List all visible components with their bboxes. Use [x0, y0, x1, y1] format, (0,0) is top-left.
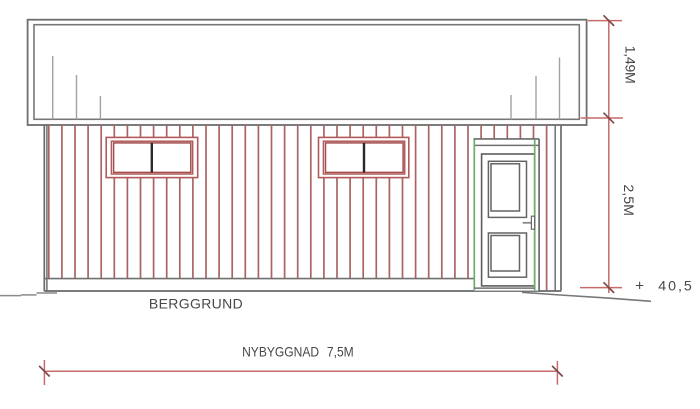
svg-text:40,5: 40,5	[658, 278, 694, 294]
svg-text:BERGGRUND: BERGGRUND	[149, 295, 243, 311]
svg-text:2,5M: 2,5M	[620, 184, 636, 216]
svg-text:NYBYGGNAD: NYBYGGNAD	[242, 344, 319, 360]
svg-text:+: +	[635, 277, 644, 294]
svg-text:7,5M: 7,5M	[327, 344, 354, 360]
svg-text:1,49M: 1,49M	[622, 46, 638, 84]
